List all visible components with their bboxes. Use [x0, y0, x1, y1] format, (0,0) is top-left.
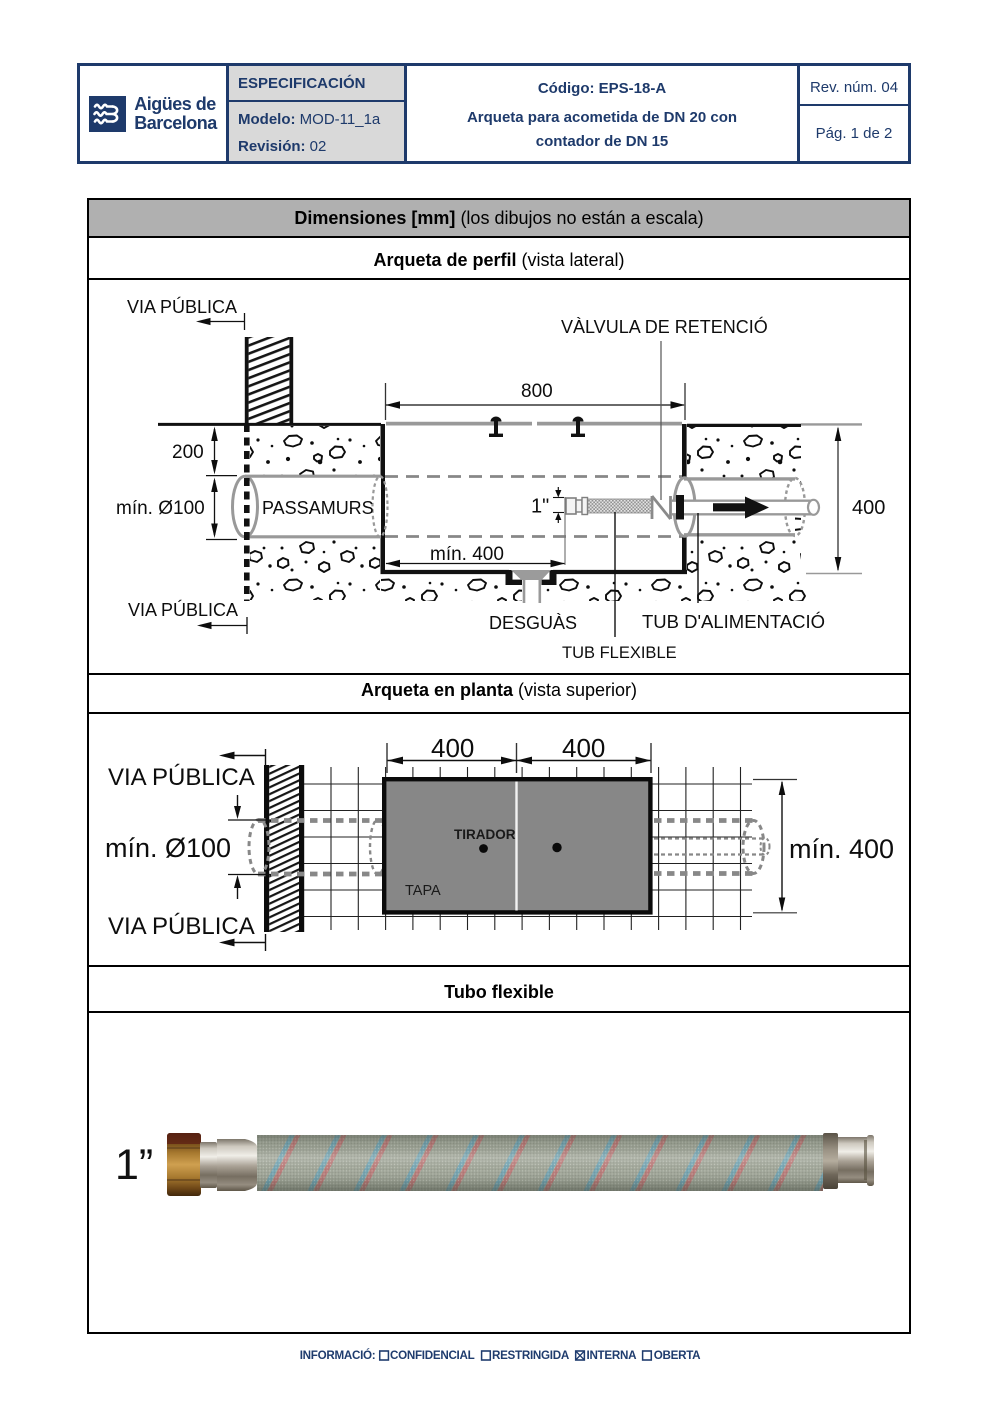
svg-text:VIA PÚBLICA: VIA PÚBLICA: [108, 913, 255, 940]
svg-text:1": 1": [531, 496, 549, 518]
svg-text:mín. Ø100: mín. Ø100: [105, 833, 231, 863]
svg-text:TUB D'ALIMENTACIÓ: TUB D'ALIMENTACIÓ: [642, 611, 825, 632]
svg-text:1”: 1”: [115, 1141, 153, 1189]
svg-text:400: 400: [852, 497, 885, 519]
svg-text:VIA PÚBLICA: VIA PÚBLICA: [128, 599, 238, 620]
svg-text:VÀLVULA DE RETENCIÓ: VÀLVULA DE RETENCIÓ: [561, 316, 768, 337]
svg-text:mín. 400: mín. 400: [789, 834, 894, 864]
svg-text:TIRADOR: TIRADOR: [454, 827, 516, 842]
svg-text:mín. Ø100: mín. Ø100: [116, 498, 205, 519]
svg-text:200: 200: [172, 442, 204, 463]
svg-text:400: 400: [431, 733, 474, 763]
svg-text:mín. 400: mín. 400: [430, 544, 504, 565]
svg-text:TUB FLEXIBLE: TUB FLEXIBLE: [562, 644, 677, 662]
svg-text:TAPA: TAPA: [405, 883, 441, 899]
svg-text:PASSAMURS: PASSAMURS: [262, 498, 374, 518]
svg-text:VIA PÚBLICA: VIA PÚBLICA: [108, 764, 255, 791]
svg-text:400: 400: [562, 733, 605, 763]
svg-text:800: 800: [521, 381, 553, 402]
svg-text:DESGUÀS: DESGUÀS: [489, 613, 577, 633]
svg-text:VIA PÚBLICA: VIA PÚBLICA: [127, 296, 237, 317]
